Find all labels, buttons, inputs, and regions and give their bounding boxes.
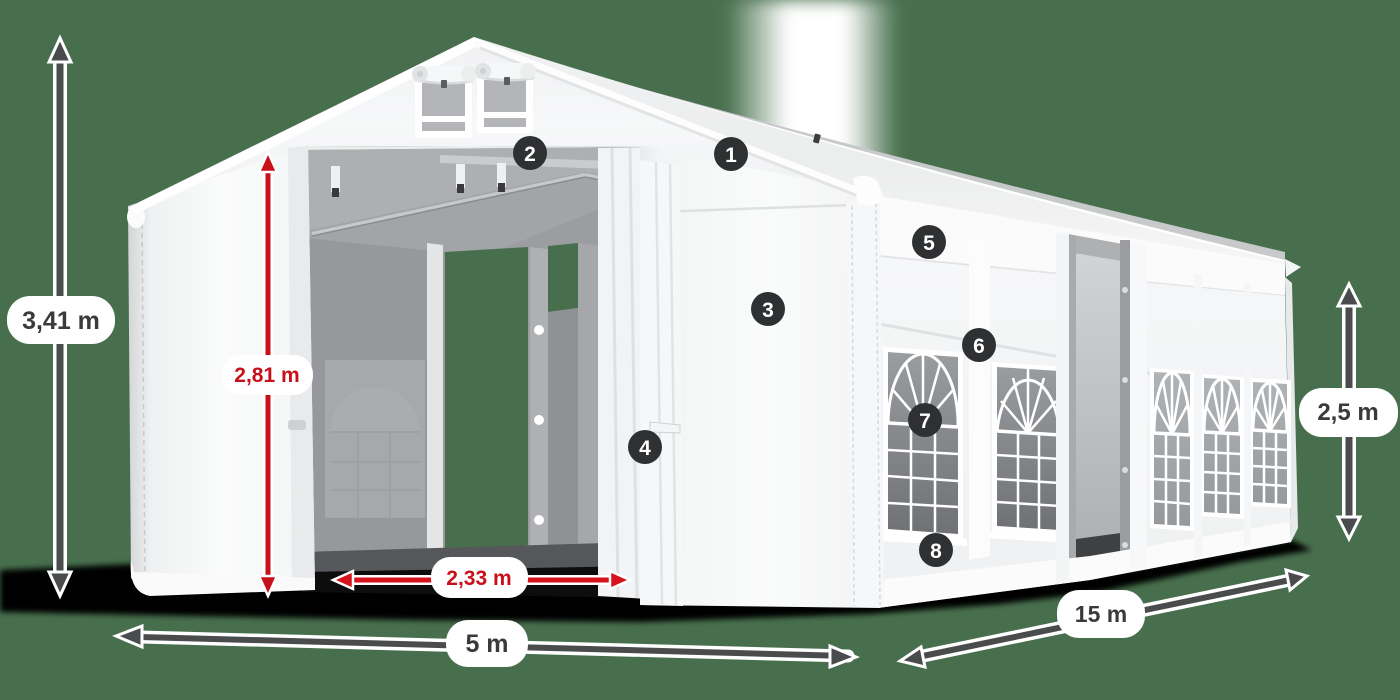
svg-text:3,41 m: 3,41 m xyxy=(22,307,100,335)
svg-text:2,33 m: 2,33 m xyxy=(446,567,511,590)
svg-text:5: 5 xyxy=(923,232,935,255)
svg-text:15 m: 15 m xyxy=(1075,601,1127,627)
svg-text:6: 6 xyxy=(973,335,985,358)
svg-text:2,81 m: 2,81 m xyxy=(234,364,299,387)
svg-text:1: 1 xyxy=(725,144,737,167)
svg-text:4: 4 xyxy=(639,437,651,460)
svg-text:2,5 m: 2,5 m xyxy=(1317,399,1378,426)
svg-text:7: 7 xyxy=(919,410,931,433)
svg-text:8: 8 xyxy=(930,540,942,563)
svg-text:3: 3 xyxy=(762,299,774,322)
svg-text:2: 2 xyxy=(524,143,536,166)
svg-text:5 m: 5 m xyxy=(465,630,508,658)
